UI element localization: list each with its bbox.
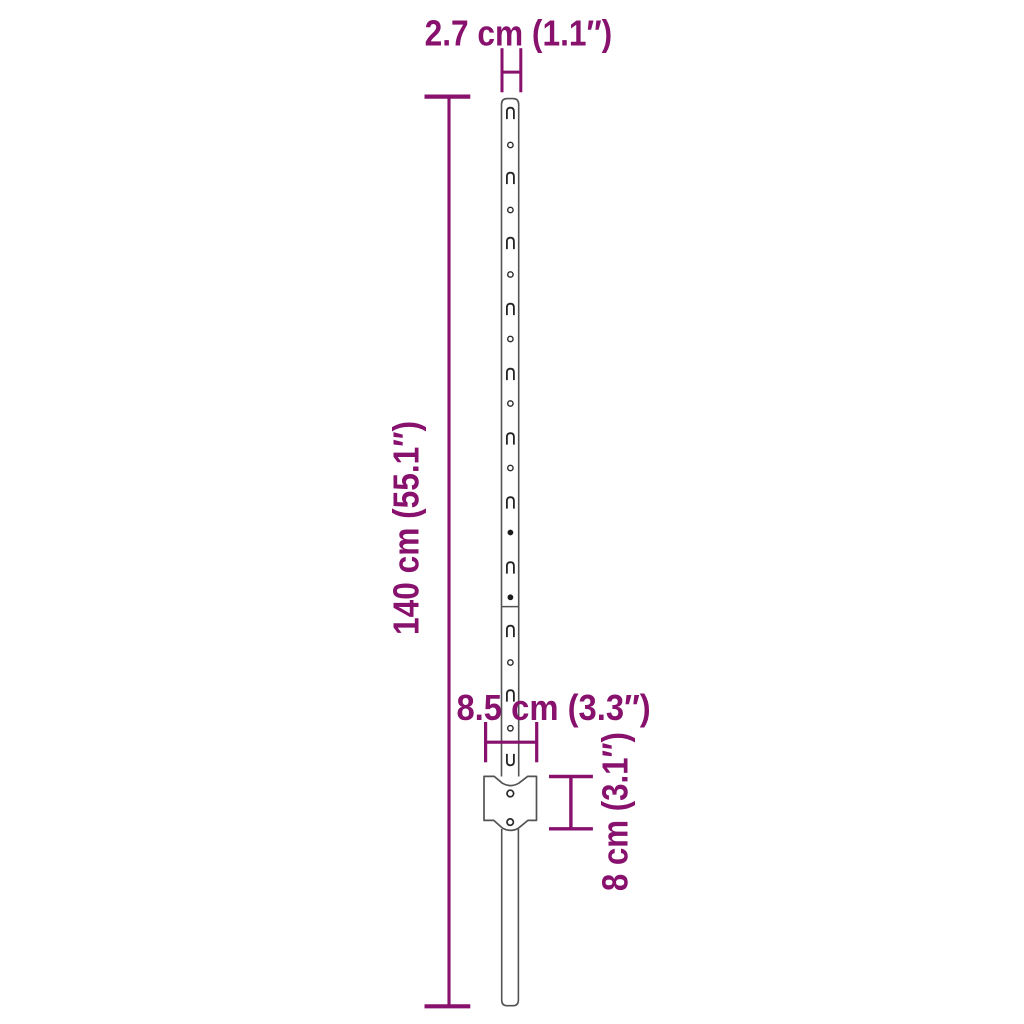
svg-text:8.5 cm (3.3″): 8.5 cm (3.3″) xyxy=(456,687,650,728)
svg-text:2.7 cm (1.1″): 2.7 cm (1.1″) xyxy=(425,12,613,53)
svg-text:8 cm (3.1″): 8 cm (3.1″) xyxy=(595,732,636,891)
svg-text:140 cm (55.1″): 140 cm (55.1″) xyxy=(385,421,426,635)
